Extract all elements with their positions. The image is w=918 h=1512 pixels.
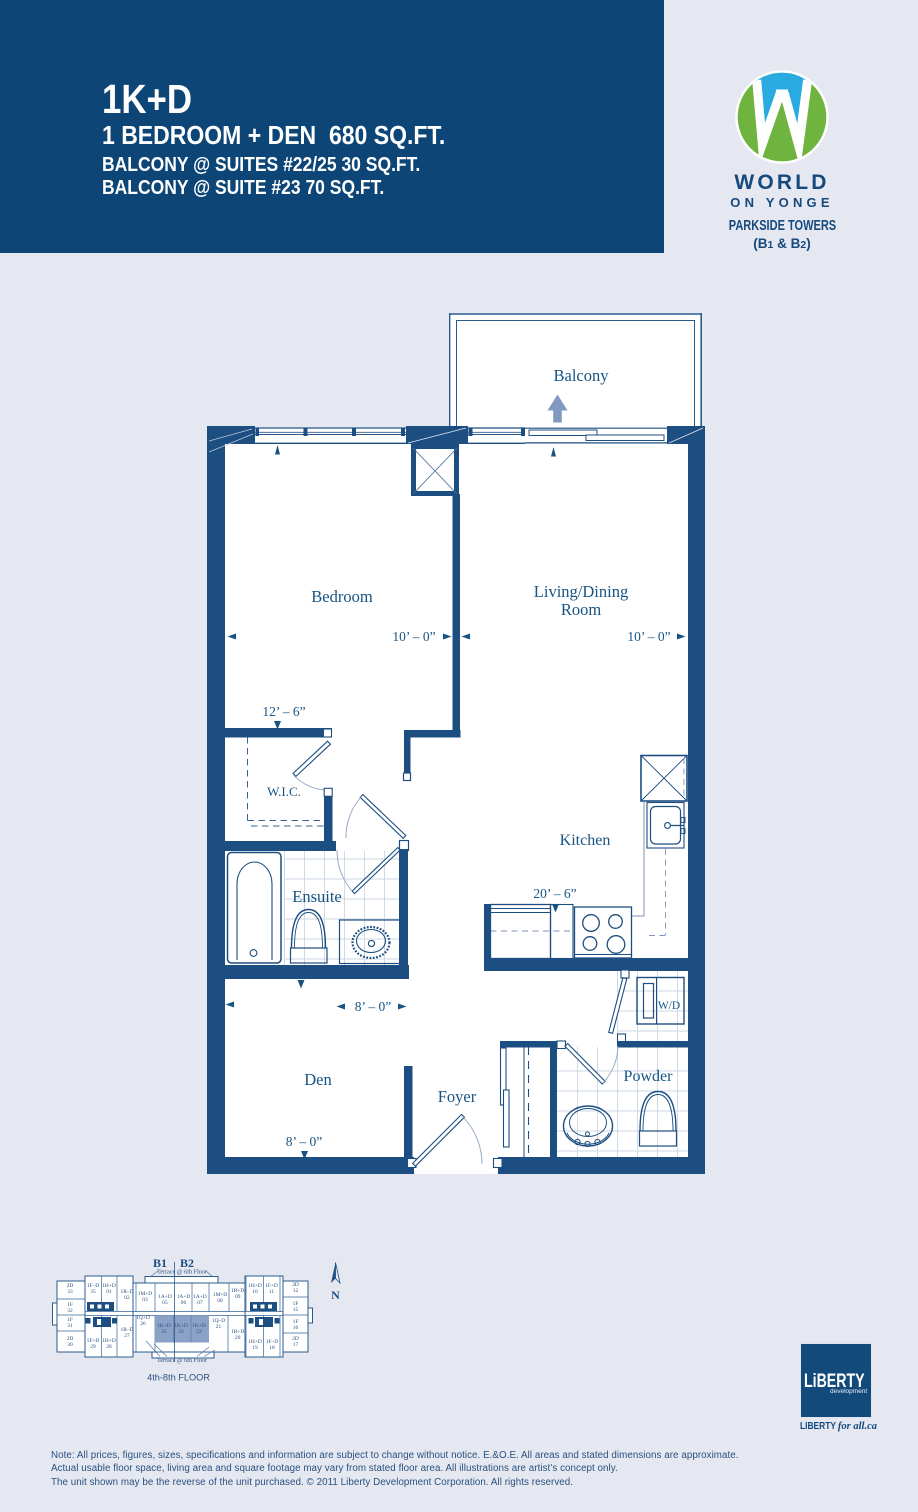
svg-text:06: 06	[181, 1300, 187, 1306]
svg-text:Living/Dining: Living/Dining	[534, 582, 628, 601]
svg-text:12: 12	[293, 1288, 299, 1294]
svg-text:02: 02	[124, 1295, 130, 1301]
svg-text:09: 09	[235, 1294, 241, 1300]
svg-text:N: N	[331, 1288, 340, 1302]
svg-text:W.I.C.: W.I.C.	[267, 784, 301, 799]
svg-text:17: 17	[293, 1342, 299, 1348]
svg-text:25: 25	[161, 1329, 167, 1335]
svg-text:30: 30	[67, 1342, 73, 1348]
svg-text:20: 20	[235, 1335, 241, 1341]
svg-text:Foyer: Foyer	[438, 1087, 477, 1106]
svg-text:10: 10	[252, 1289, 258, 1295]
svg-text:12’ – 6”: 12’ – 6”	[262, 704, 305, 719]
svg-text:18: 18	[269, 1345, 275, 1351]
svg-text:11: 11	[269, 1289, 274, 1295]
svg-text:01: 01	[106, 1289, 112, 1295]
svg-text:Kitchen: Kitchen	[560, 832, 611, 849]
svg-text:Room: Room	[561, 600, 602, 619]
svg-text:19: 19	[252, 1345, 258, 1351]
svg-text:35: 35	[90, 1289, 96, 1295]
svg-text:22: 22	[196, 1329, 202, 1335]
svg-text:10’ – 0”: 10’ – 0”	[627, 629, 670, 644]
svg-text:07: 07	[197, 1300, 203, 1306]
svg-text:03: 03	[142, 1297, 148, 1303]
svg-text:29: 29	[90, 1344, 96, 1350]
svg-text:28: 28	[106, 1344, 112, 1350]
svg-text:21: 21	[216, 1324, 222, 1330]
svg-text:8’ – 0”: 8’ – 0”	[286, 1134, 323, 1149]
svg-text:15: 15	[293, 1307, 299, 1313]
svg-text:4th-8th FLOOR: 4th-8th FLOOR	[147, 1373, 210, 1383]
svg-text:20’ – 6”: 20’ – 6”	[533, 886, 576, 901]
svg-text:32: 32	[67, 1308, 73, 1314]
svg-text:Bedroom: Bedroom	[311, 587, 373, 606]
svg-text:27: 27	[124, 1333, 130, 1339]
svg-text:8’ – 0”: 8’ – 0”	[355, 999, 392, 1014]
svg-text:Terrace @ 6th Floor: Terrace @ 6th Floor	[157, 1357, 207, 1364]
svg-text:Balcony: Balcony	[554, 366, 610, 385]
svg-text:10’ – 0”: 10’ – 0”	[392, 629, 435, 644]
svg-text:33: 33	[67, 1289, 73, 1295]
svg-text:Terrace @ 6th Floor: Terrace @ 6th Floor	[157, 1269, 207, 1276]
svg-text:16: 16	[293, 1325, 299, 1331]
svg-text:Den: Den	[304, 1070, 332, 1089]
svg-text:08: 08	[217, 1298, 223, 1304]
svg-text:26: 26	[140, 1321, 146, 1327]
svg-text:W/D: W/D	[658, 1000, 680, 1012]
svg-text:23: 23	[178, 1329, 184, 1335]
svg-text:31: 31	[67, 1323, 73, 1329]
svg-text:Powder: Powder	[624, 1068, 674, 1085]
svg-text:Ensuite: Ensuite	[292, 887, 342, 906]
svg-text:05: 05	[162, 1300, 168, 1306]
